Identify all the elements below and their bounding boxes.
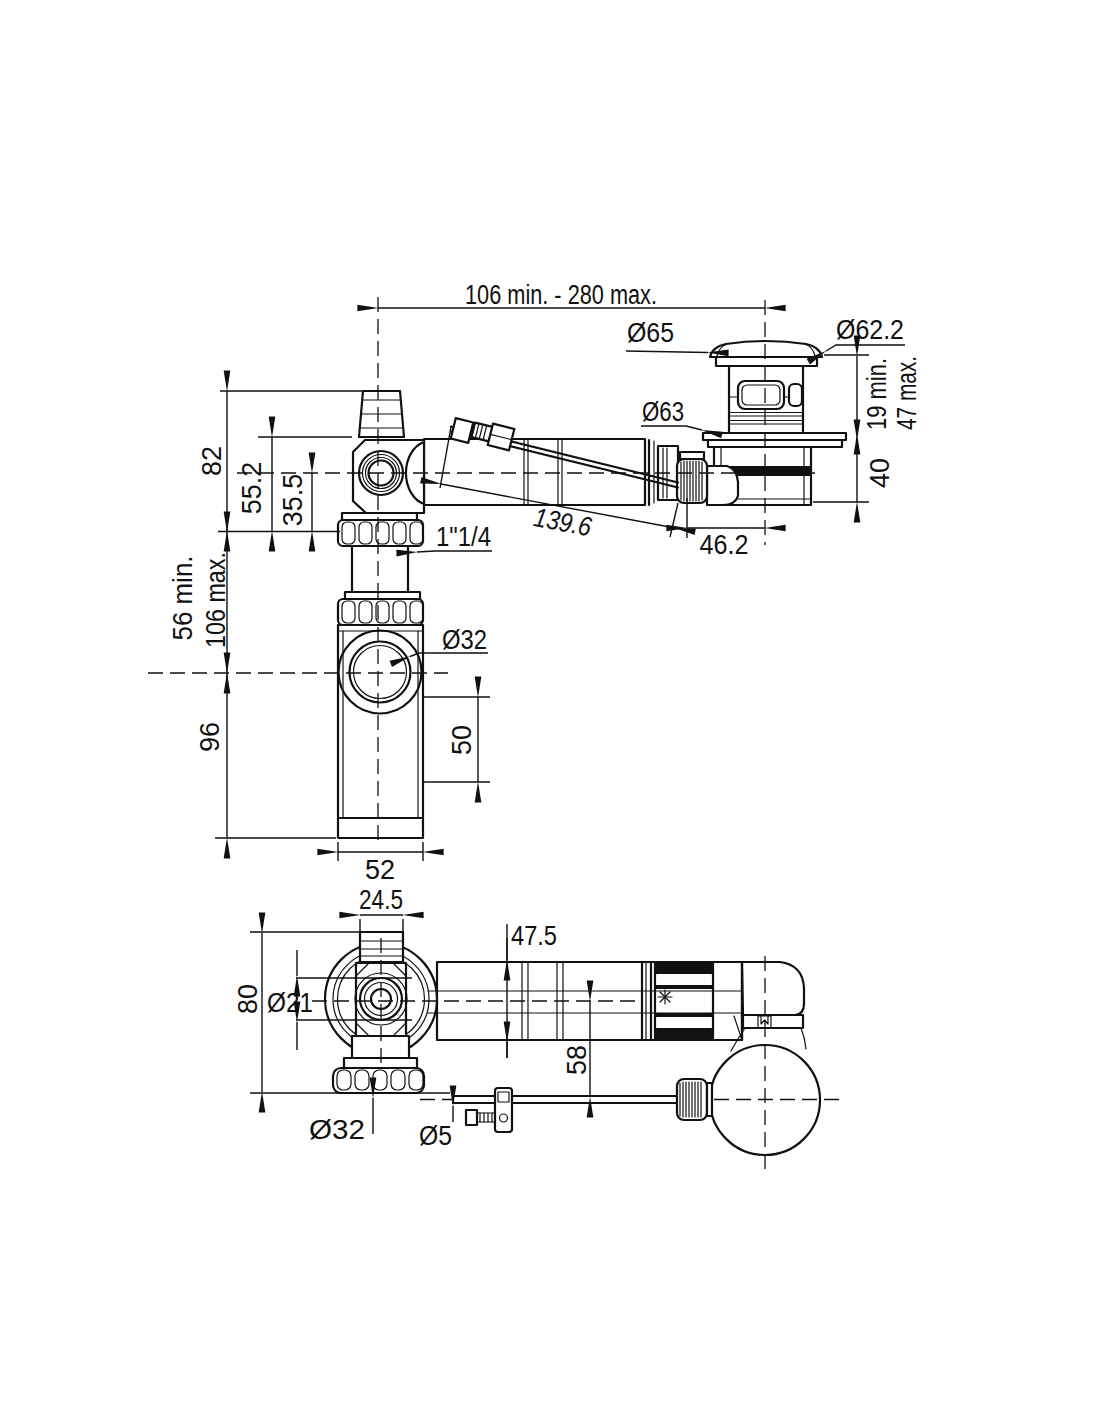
- waste-upper-body: [729, 366, 803, 433]
- tee-body: [353, 440, 424, 513]
- bottom-view: 24.5 47.5 80 Ø21 58 Ø32 Ø5: [233, 885, 845, 1176]
- adjuster-plan: [677, 1079, 712, 1120]
- pop-up-plug-cap: [710, 341, 822, 357]
- drawing-page: 106 min. - 280 max. Ø65 Ø62.2 Ø63 82 55.…: [0, 0, 1100, 1422]
- riser-tube: [352, 546, 408, 593]
- dim-trap-range-max: 106 max.: [201, 552, 231, 648]
- dim-cup-height: 96: [195, 722, 225, 752]
- bottom-view-geometry: [325, 932, 820, 1155]
- elbow-plan: [731, 962, 806, 1051]
- upper-coupling-nut: [338, 513, 423, 546]
- dim-center-height: 35.5: [278, 474, 308, 527]
- dim-thread: 1"1/4: [436, 522, 491, 552]
- mold-mark: [658, 990, 672, 1004]
- dim-plug-travel-min: 19 min.: [862, 358, 892, 430]
- dim-overall-depth: 80: [233, 984, 263, 1014]
- dim-waste-body-height: 40: [865, 458, 895, 488]
- dim-plug-travel-max: 47 max.: [892, 356, 922, 430]
- side-view: 106 min. - 280 max. Ø65 Ø62.2 Ø63 82 55.…: [148, 280, 922, 885]
- dim-waste-offset: 46.2: [700, 530, 749, 560]
- dim-cap-dia: Ø65: [627, 318, 674, 348]
- rod-clamp-plan: [466, 1088, 512, 1132]
- elbow-cup: [707, 466, 738, 505]
- side-view-geometry: [338, 341, 846, 838]
- dim-rod-length: 139.6: [531, 502, 594, 542]
- dim-pipe-dia: 47.5: [511, 921, 557, 951]
- side-view-labels: 106 min. - 280 max. Ø65 Ø62.2 Ø63 82 55.…: [168, 280, 922, 885]
- technical-drawing: 106 min. - 280 max. Ø65 Ø62.2 Ø63 82 55.…: [0, 0, 1100, 1422]
- dim-nut-dia: Ø32: [309, 1115, 365, 1145]
- hose-barb-inlet: [359, 391, 404, 437]
- dim-plug-dia: Ø62.2: [836, 315, 904, 345]
- dim-trap-dia: Ø32: [442, 625, 487, 655]
- dim-cup-width: 52: [365, 855, 395, 885]
- dim-outlet-drop: 50: [447, 725, 477, 755]
- dim-waste-dia: Ø63: [642, 397, 684, 427]
- lower-coupling-nut: [338, 592, 423, 625]
- dim-trap-range-min: 56 min.: [168, 556, 198, 641]
- dim-inlet-bore-dia: Ø21: [267, 988, 313, 1018]
- dim-tee-height: 55.2: [237, 462, 267, 515]
- rod-plan: [453, 1079, 712, 1132]
- side-view-centerlines: [148, 297, 815, 845]
- dim-span: 106 min. - 280 max.: [465, 280, 657, 310]
- dim-rod-offset: 58: [562, 1045, 592, 1075]
- dim-inlet-height: 82: [197, 446, 227, 476]
- dim-barb-width: 24.5: [359, 885, 403, 915]
- dim-rod-dia: Ø5: [419, 1121, 452, 1151]
